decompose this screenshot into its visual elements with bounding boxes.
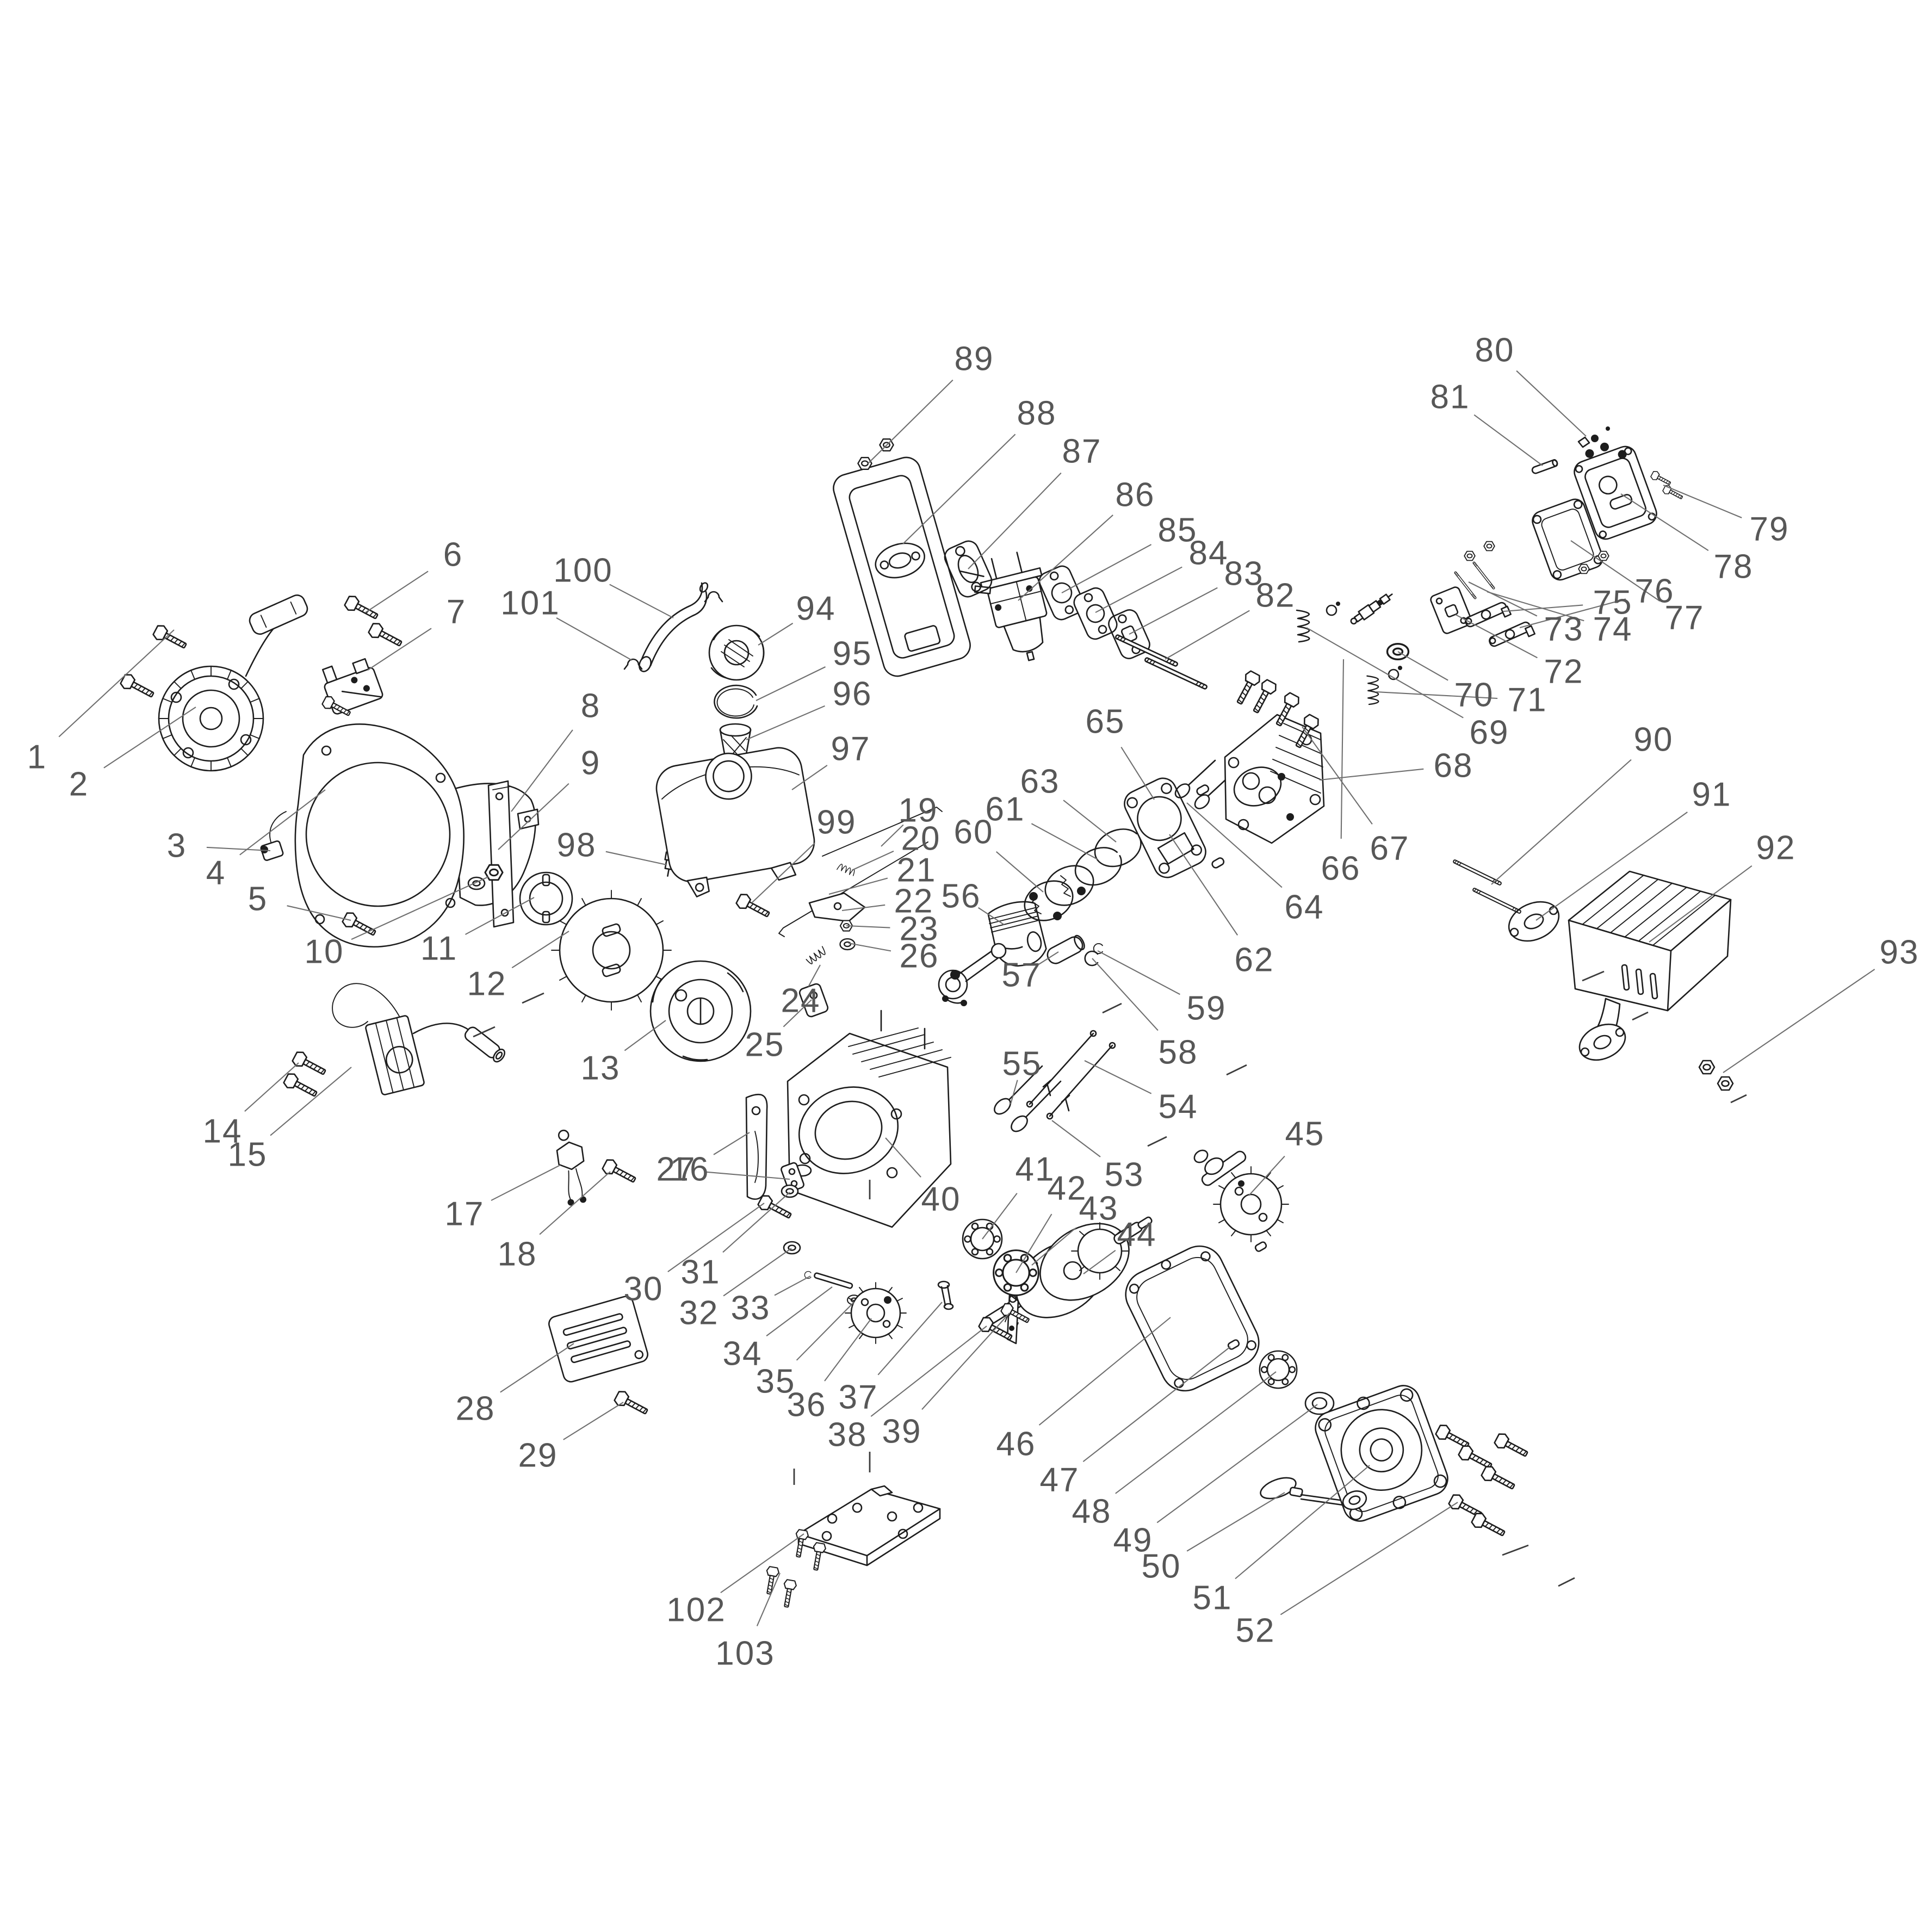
crankcase-cover: [1310, 1379, 1453, 1526]
leader-line-16: [714, 1132, 750, 1155]
leader-line-93: [1723, 969, 1875, 1073]
callout-59: 59: [1187, 990, 1227, 1027]
pin-clip-a: [1085, 951, 1098, 965]
callout-61: 61: [986, 791, 1025, 828]
callout-66: 66: [1321, 850, 1361, 888]
heat-shield-bolt: [613, 1389, 650, 1419]
callout-54: 54: [1159, 1088, 1198, 1126]
callout-52: 52: [1236, 1612, 1275, 1650]
leader-line-79: [1663, 485, 1742, 518]
callout-70: 70: [1454, 677, 1494, 714]
compression-rings: [1069, 822, 1147, 892]
tick-mark-12: [1731, 1095, 1747, 1103]
callout-31: 31: [681, 1254, 721, 1291]
callout-56: 56: [942, 878, 981, 915]
leader-line-80: [1516, 371, 1586, 436]
leader-line-61: [1031, 823, 1098, 859]
crankcase-side-plate: [746, 1094, 767, 1199]
spark-plug: [1349, 590, 1395, 627]
callout-27: 27: [657, 1151, 696, 1188]
callout-5: 5: [248, 881, 268, 918]
leader-line-103: [757, 1573, 780, 1626]
callout-71: 71: [1508, 682, 1547, 719]
callout-50: 50: [1142, 1548, 1181, 1586]
leader-line-26: [849, 943, 891, 951]
leader-line-100: [610, 585, 673, 618]
callout-75: 75: [1593, 584, 1633, 622]
leader-line-86: [1018, 515, 1113, 600]
leader-line-87: [968, 473, 1061, 569]
callout-78: 78: [1714, 548, 1754, 586]
callout-95: 95: [833, 635, 872, 673]
muffler-nuts: [1699, 1061, 1733, 1090]
callout-24: 24: [781, 982, 821, 1020]
leader-line-20: [852, 851, 894, 870]
callout-18: 18: [498, 1236, 537, 1273]
tick-mark-1: [522, 993, 544, 1003]
starter-handle: [247, 593, 310, 636]
leader-line-72: [1456, 615, 1537, 658]
callout-53: 53: [1105, 1156, 1144, 1194]
valve-cover: [1568, 434, 1659, 542]
leader-line-32: [723, 1248, 791, 1296]
leader-line-50: [1187, 1493, 1285, 1551]
leader-line-70: [1398, 652, 1448, 680]
leader-line-23: [846, 926, 890, 928]
callout-80: 80: [1475, 332, 1515, 369]
callout-87: 87: [1062, 433, 1102, 470]
callout-94: 94: [796, 590, 836, 628]
callout-3: 3: [167, 827, 187, 865]
leader-line-63: [1063, 800, 1116, 842]
leader-line-54: [1085, 1061, 1151, 1094]
callout-62: 62: [1235, 942, 1274, 979]
tick-mark-8: [1502, 1545, 1528, 1555]
callout-29: 29: [518, 1437, 558, 1475]
callout-9: 9: [581, 745, 600, 782]
callout-73: 73: [1544, 611, 1584, 648]
leader-line-81: [1474, 415, 1543, 466]
callout-79: 79: [1750, 511, 1789, 548]
flywheel: [651, 961, 751, 1061]
governor-pin: [814, 1273, 852, 1289]
callout-96: 96: [833, 676, 872, 713]
callout-10: 10: [305, 933, 344, 971]
leader-line-96: [746, 706, 825, 740]
leader-line-83: [1129, 588, 1217, 634]
callout-81: 81: [1431, 379, 1470, 416]
callout-28: 28: [456, 1390, 496, 1428]
callout-44: 44: [1117, 1216, 1157, 1254]
tank-neck-ring: [714, 685, 757, 718]
callout-65: 65: [1086, 703, 1125, 741]
leader-line-85: [1062, 544, 1151, 593]
fuel-cap: [709, 626, 764, 680]
leader-line-101: [556, 618, 632, 660]
camshaft: [1192, 1148, 1289, 1242]
callout-72: 72: [1544, 653, 1584, 691]
cylinder-head-gasket: [1120, 774, 1225, 882]
callout-39: 39: [882, 1413, 922, 1451]
callout-43: 43: [1079, 1190, 1119, 1228]
callout-8: 8: [581, 688, 600, 725]
tank-bolt: [735, 892, 772, 921]
leader-line-84: [1095, 567, 1182, 613]
callout-32: 32: [679, 1295, 719, 1332]
leader-line-31: [723, 1192, 790, 1252]
leader-line-38: [871, 1326, 987, 1416]
callout-25: 25: [745, 1026, 785, 1064]
callout-91: 91: [1692, 776, 1732, 814]
callout-11: 11: [420, 930, 457, 968]
leader-line-6: [366, 571, 428, 612]
cover-bolts: [1434, 1423, 1530, 1540]
callout-67: 67: [1370, 830, 1410, 868]
starter-cup: [520, 872, 572, 925]
leader-line-82: [1165, 611, 1249, 660]
leader-line-8: [511, 730, 573, 812]
callout-36: 36: [787, 1386, 827, 1424]
oil-ring-set: [1018, 858, 1100, 928]
callout-64: 64: [1285, 889, 1324, 926]
callout-85: 85: [1158, 512, 1198, 549]
callout-97: 97: [831, 730, 871, 768]
main-bearings: [963, 1219, 1038, 1295]
valve-springs: [1297, 610, 1378, 704]
governor-bolt: [757, 1193, 794, 1223]
callout-92: 92: [1756, 829, 1796, 867]
callout-48: 48: [1072, 1493, 1112, 1531]
fan-cover-bolts: [343, 594, 404, 651]
tick-mark-9: [1558, 1578, 1575, 1586]
leader-line-98: [606, 852, 667, 865]
carburetor: [959, 548, 1061, 671]
callout-2: 2: [69, 766, 89, 803]
leader-line-59: [1098, 951, 1180, 994]
callout-90: 90: [1634, 721, 1674, 759]
callout-1: 1: [27, 739, 47, 776]
callout-26: 26: [900, 938, 939, 975]
leader-line-65: [1121, 747, 1154, 800]
callout-12: 12: [467, 965, 507, 1003]
governor-gear: [845, 1283, 906, 1343]
callout-4: 4: [206, 854, 226, 892]
diode-bolt: [601, 1157, 638, 1187]
fuel-hose: [637, 581, 709, 673]
callout-103: 103: [715, 1635, 775, 1673]
leader-line-48: [1116, 1372, 1276, 1494]
callout-51: 51: [1193, 1580, 1233, 1617]
callout-15: 15: [228, 1136, 268, 1174]
callout-68: 68: [1434, 747, 1473, 785]
leader-line-58: [1092, 958, 1158, 1030]
rocker-pin: [1531, 459, 1558, 474]
hose-clips: [624, 592, 722, 669]
leader-line-35: [797, 1302, 854, 1360]
leader-line-53: [1052, 1120, 1100, 1157]
leader-line-51: [1235, 1465, 1370, 1579]
cover-bearing: [1260, 1351, 1297, 1388]
breather-plate: [1429, 586, 1473, 635]
piston-pin: [1045, 933, 1087, 966]
callout-17: 17: [445, 1196, 485, 1233]
crankcase-gasket: [1118, 1238, 1267, 1398]
leader-line-68: [1320, 769, 1423, 780]
callout-13: 13: [581, 1050, 621, 1087]
callout-83: 83: [1224, 555, 1264, 593]
callout-38: 38: [828, 1416, 868, 1454]
muffler-gasket: [1503, 894, 1565, 948]
washer-a: [782, 1185, 798, 1197]
fuel-tank: [652, 741, 820, 900]
leader-line-36: [825, 1318, 871, 1381]
callout-88: 88: [1017, 395, 1057, 432]
callout-99: 99: [817, 804, 857, 841]
callout-69: 69: [1470, 714, 1509, 752]
callout-33: 33: [731, 1290, 771, 1327]
tick-mark-13: [1227, 1065, 1247, 1075]
leader-line-66: [1341, 659, 1343, 839]
callout-93: 93: [1880, 934, 1919, 971]
callout-37: 37: [839, 1379, 878, 1416]
leader-line-39: [922, 1313, 1010, 1409]
leader-line-69: [1306, 628, 1463, 718]
leader-line-17: [491, 1165, 560, 1200]
tick-mark-4: [1148, 1137, 1167, 1146]
callout-100: 100: [553, 552, 612, 590]
callout-30: 30: [624, 1271, 664, 1308]
muffler: [1569, 871, 1731, 1067]
callout-6: 6: [443, 536, 463, 574]
cylinder-head: [1225, 715, 1324, 843]
callout-86: 86: [1116, 476, 1155, 514]
engine-control-assembly: [319, 653, 384, 720]
callout-46: 46: [996, 1426, 1036, 1463]
callout-98: 98: [557, 827, 597, 864]
callout-102: 102: [666, 1592, 726, 1629]
callout-63: 63: [1020, 763, 1060, 801]
recoil-starter: [159, 593, 309, 771]
exploded-parts-diagram: 1234567891011121314151617181920212223242…: [0, 0, 1932, 1932]
leader-line-89: [868, 380, 953, 463]
callout-55: 55: [1002, 1045, 1042, 1083]
callout-77: 77: [1665, 599, 1705, 637]
connecting-rod: [939, 944, 1006, 1006]
leader-line-33: [775, 1276, 810, 1295]
callout-45: 45: [1285, 1116, 1325, 1153]
leader-line-1: [59, 630, 174, 737]
callout-58: 58: [1159, 1034, 1198, 1072]
heat-shield: [547, 1295, 649, 1383]
governor-plunger: [938, 1281, 953, 1309]
leader-line-18: [540, 1172, 610, 1235]
leader-line-95: [756, 667, 826, 701]
callout-7: 7: [447, 593, 466, 631]
tick-mark-11: [1632, 1012, 1648, 1020]
callout-57: 57: [1002, 957, 1042, 994]
leader-line-49: [1157, 1404, 1317, 1522]
callout-101: 101: [500, 585, 560, 622]
callout-40: 40: [921, 1181, 961, 1218]
leader-line-60: [996, 852, 1043, 892]
tick-mark-3: [1103, 1004, 1122, 1013]
leader-line-90: [1491, 760, 1631, 884]
leader-line-21: [829, 878, 888, 895]
callout-89: 89: [955, 340, 994, 378]
leader-line-62: [1169, 834, 1237, 935]
leader-line-94: [758, 623, 793, 645]
leader-line-29: [563, 1402, 623, 1440]
